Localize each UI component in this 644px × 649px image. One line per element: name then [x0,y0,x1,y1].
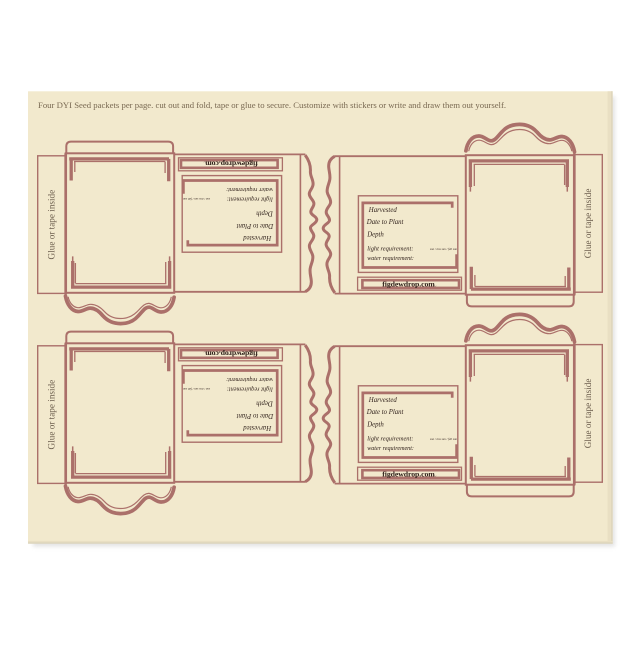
svg-text:Date to Plant: Date to Plant [235,412,274,419]
svg-text:figdewdrop.com: figdewdrop.com [205,159,258,168]
svg-text:Depth: Depth [256,400,274,407]
svg-text:figdewdrop.com: figdewdrop.com [205,349,258,358]
svg-text:sun / low sun / full sun: sun / low sun / full sun [430,247,458,251]
svg-text:Date to Plant: Date to Plant [366,219,405,226]
svg-text:Harvested: Harvested [368,397,398,404]
svg-text:sun / low sun / full sun: sun / low sun / full sun [182,197,210,201]
svg-text:light requirement:: light requirement: [227,196,273,203]
svg-text:Depth: Depth [366,422,384,429]
svg-text:light requirement:: light requirement: [227,386,273,393]
svg-text:Glue or tape inside: Glue or tape inside [46,190,56,260]
svg-text:Four DYI Seed packets per page: Four DYI Seed packets per page. cut out … [38,100,506,110]
svg-text:Date to Plant: Date to Plant [235,222,274,229]
svg-text:figdewdrop.com: figdewdrop.com [382,280,435,289]
svg-text:Harvested: Harvested [243,424,273,431]
svg-text:sun / low sun / full sun: sun / low sun / full sun [430,437,458,441]
svg-text:Glue or tape inside: Glue or tape inside [46,380,56,450]
svg-text:figdewdrop.com: figdewdrop.com [382,470,435,479]
svg-text:Depth: Depth [256,210,274,217]
svg-text:water requirement:: water requirement: [226,186,273,192]
svg-text:light requirement:: light requirement: [367,245,413,252]
svg-text:water requirement:: water requirement: [226,376,273,382]
svg-text:light requirement:: light requirement: [367,435,413,442]
svg-text:water requirement:: water requirement: [367,446,414,452]
svg-text:Harvested: Harvested [243,234,273,241]
svg-text:Glue or tape inside: Glue or tape inside [583,379,593,449]
svg-text:Date to Plant: Date to Plant [366,409,405,416]
svg-text:Harvested: Harvested [368,207,398,214]
svg-text:sun / low sun / full sun: sun / low sun / full sun [182,387,210,391]
svg-text:Glue or tape inside: Glue or tape inside [583,189,593,259]
svg-text:Depth: Depth [366,232,384,239]
svg-text:water requirement:: water requirement: [367,256,414,262]
